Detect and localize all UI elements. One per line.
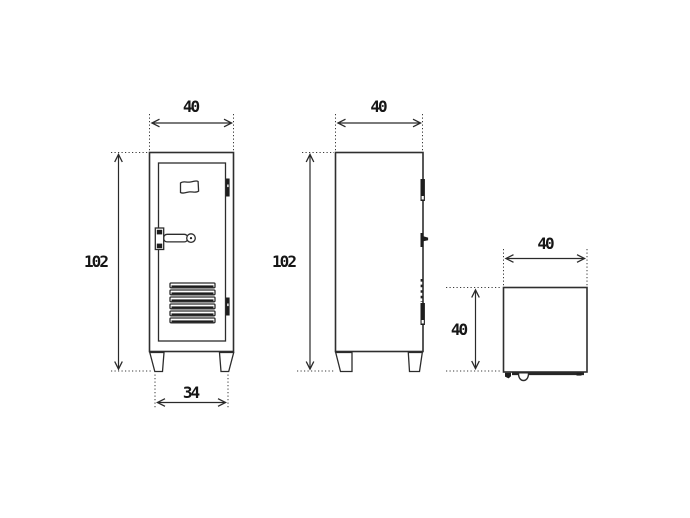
vent-slat-shade	[172, 285, 214, 287]
dim-label-top-depth: 40	[451, 322, 468, 338]
top-handle-loop	[519, 374, 529, 381]
latch-rivet-top	[157, 230, 162, 235]
technical-drawing-canvas: 40 102 34 40 102 40 40	[0, 0, 690, 518]
front-hinge-top	[226, 179, 230, 197]
side-hinge-bottom-slit	[422, 320, 424, 324]
dim-label-top-width: 40	[537, 236, 554, 252]
vent-slat-shade	[172, 306, 214, 308]
dim-label-side-height: 102	[272, 254, 297, 270]
label-holder-plate	[181, 181, 199, 193]
latch-knob-pin	[190, 237, 192, 239]
vent-slat-shade	[172, 320, 214, 322]
side-view	[297, 114, 428, 372]
front-left-leg	[150, 353, 164, 372]
dim-label-side-depth: 40	[370, 99, 387, 115]
front-hinge-top-slit	[227, 185, 228, 188]
latch-rivet-bottom	[157, 244, 162, 249]
front-hinge-bottom-slit	[227, 304, 228, 307]
top-hinge-mark	[577, 373, 582, 376]
top-latch-mark	[505, 373, 511, 379]
front-hinge-bottom	[226, 298, 230, 316]
dim-label-front-width: 40	[183, 99, 200, 115]
vent-slat-shade	[172, 299, 214, 301]
side-latch-profile	[421, 233, 429, 247]
side-rear-leg	[408, 353, 422, 372]
side-cabinet-outline	[336, 153, 424, 352]
vent-slat-shade	[172, 292, 214, 294]
side-depth-dimension	[336, 114, 423, 151]
top-cabinet-outline	[504, 288, 588, 373]
side-height-dimension	[297, 153, 334, 372]
top-width-dimension	[504, 249, 588, 286]
front-right-leg	[220, 353, 234, 372]
vent-slat-shade	[172, 313, 214, 315]
front-height-dimension	[111, 153, 153, 372]
side-hinge-top-slit	[422, 196, 424, 200]
top-view	[446, 249, 587, 381]
front-width-dimension	[150, 114, 234, 151]
dim-label-front-height: 102	[84, 254, 109, 270]
dim-label-feet-width: 34	[183, 385, 200, 401]
front-view	[111, 114, 234, 408]
latch-arm	[164, 234, 188, 242]
side-front-leg	[336, 353, 352, 372]
